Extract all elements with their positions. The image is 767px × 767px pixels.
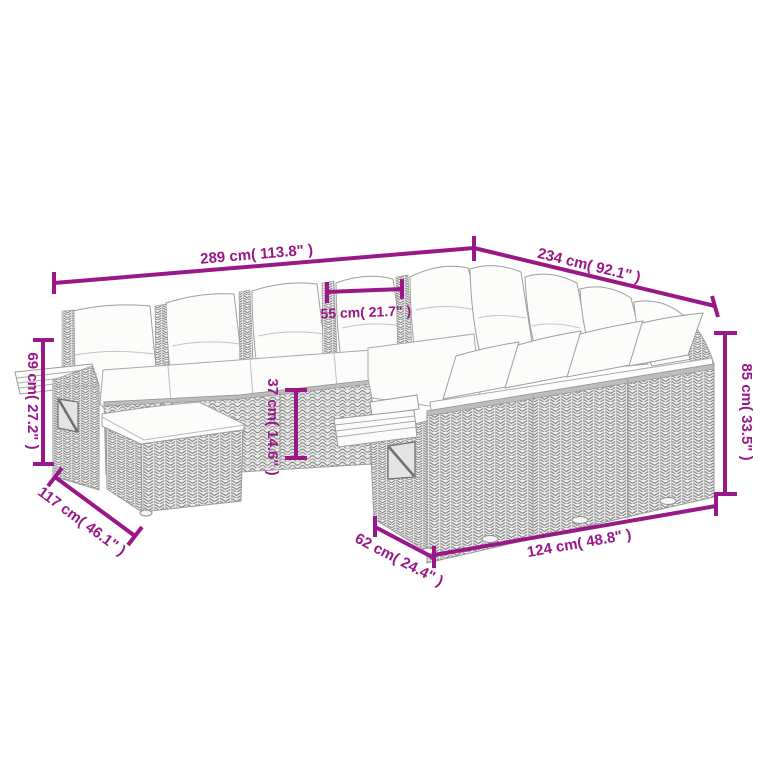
svg-text:85 cm( 33.5" ): 85 cm( 33.5" ) xyxy=(738,363,755,460)
svg-text:55 cm( 21.7" ): 55 cm( 21.7" ) xyxy=(320,302,411,321)
svg-text:69 cm( 27.2" ): 69 cm( 27.2" ) xyxy=(24,352,41,449)
svg-text:37 cm( 14.6" ): 37 cm( 14.6" ) xyxy=(264,378,281,475)
